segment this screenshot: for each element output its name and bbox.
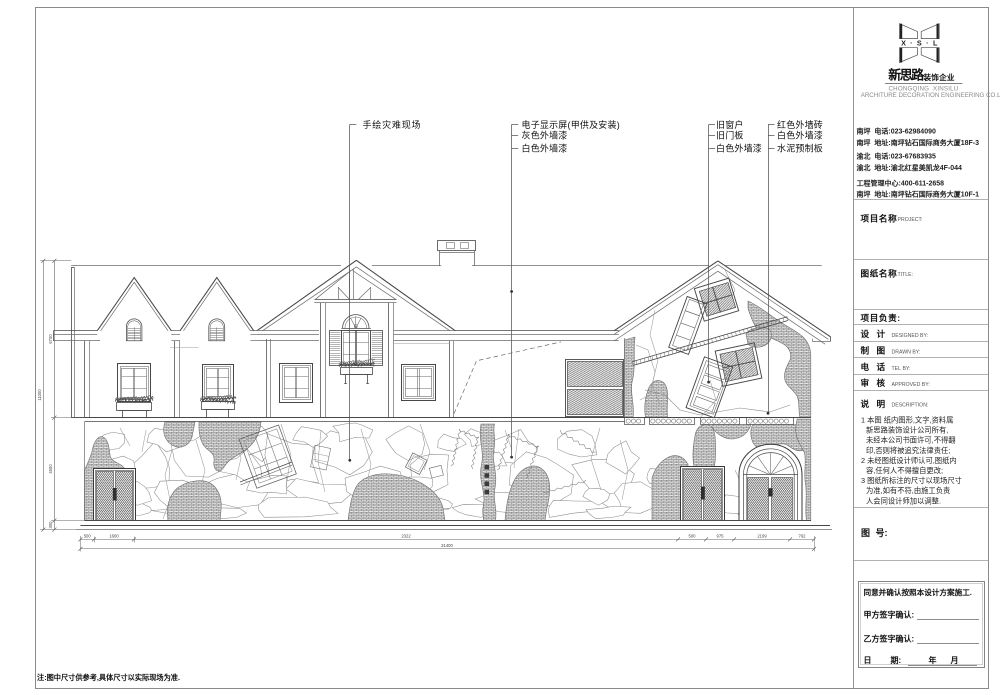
svg-text:31400: 31400 [441,543,453,548]
svg-text:电: 电 [861,361,870,372]
svg-text:月: 月 [950,656,959,665]
svg-text:甲方签字确认:: 甲方签字确认: [864,609,915,619]
svg-text:灰色外墙漆: 灰色外墙漆 [522,130,568,141]
svg-text:975: 975 [717,534,725,539]
svg-text:图: 图 [861,528,870,538]
svg-text:同意并确认按照本设计方案施工.: 同意并确认按照本设计方案施工. [864,587,972,597]
svg-text:人会同设计师加以调整.: 人会同设计师加以调整. [866,496,941,505]
svg-text:注:图中尺寸供参考,具体尺寸以实际现场为准.: 注:图中尺寸供参考,具体尺寸以实际现场为准. [37,673,180,682]
svg-text:红色外墙砖: 红色外墙砖 [777,119,823,130]
svg-text:工程管理中心:400-611-2658: 工程管理中心:400-611-2658 [857,179,945,188]
svg-text:ARCHITURE DECORATION ENGINEERI: ARCHITURE DECORATION ENGINEERING CO.LTD [861,92,1000,99]
svg-text:DRAWN BY:: DRAWN BY: [892,349,921,355]
svg-text:1 本图 纸内图形,文字,资料属: 1 本图 纸内图形,文字,资料属 [861,416,953,425]
svg-text:话: 话 [877,361,886,372]
svg-text:300: 300 [48,521,53,529]
svg-text:新思路: 新思路 [888,68,925,83]
svg-text:旧门板: 旧门板 [716,130,744,141]
svg-text:APPROVED BY:: APPROVED BY: [892,382,930,388]
svg-text:项目名称: 项目名称 [861,213,898,224]
svg-text:装饰企业: 装饰企业 [923,72,955,82]
svg-text:1600: 1600 [109,534,119,539]
svg-text:设: 设 [861,328,870,339]
svg-text:容,任何人不得擅自更改;: 容,任何人不得擅自更改; [866,466,943,475]
svg-text:南坪 地址:南坪钻石国际商务大厦18F-3: 南坪 地址:南坪钻石国际商务大厦18F-3 [857,138,980,147]
svg-text:制: 制 [861,344,870,355]
svg-text:手绘灾难现场: 手绘灾难现场 [363,119,422,130]
svg-text:年: 年 [929,655,937,665]
svg-text:PROJECT:: PROJECT: [898,217,923,223]
svg-text:DESIGNED BY:: DESIGNED BY: [892,333,929,339]
svg-text:未经本公司书面许可,不得翻: 未经本公司书面许可,不得翻 [866,436,956,445]
svg-text:印,否则将被追究法律责任;: 印,否则将被追究法律责任; [866,446,950,455]
svg-text:南坪 地址:南坪钻石国际商务大厦10F-1: 南坪 地址:南坪钻石国际商务大厦10F-1 [857,190,980,199]
svg-text:渝北 地址:渝北红星美凯龙4F-044: 渝北 地址:渝北红星美凯龙4F-044 [857,163,963,172]
svg-text:TEL BY:: TEL BY: [892,366,911,372]
svg-text:明: 明 [877,399,886,409]
svg-text:·: · [926,39,928,48]
svg-text:L: L [933,39,938,48]
svg-text:2322: 2322 [401,534,411,539]
svg-text:X: X [901,39,906,48]
svg-text:项目负责:: 项目负责: [861,312,901,323]
svg-text:6700: 6700 [48,334,53,344]
svg-text:白色外墙漆: 白色外墙漆 [777,130,823,141]
svg-text:S: S [917,39,922,48]
svg-text:水泥预制板: 水泥预制板 [777,143,823,154]
svg-text:图: 图 [877,345,886,355]
svg-text:计: 计 [877,328,886,339]
svg-text:·: · [910,39,912,48]
svg-text:500: 500 [84,534,92,539]
svg-text:图纸名称: 图纸名称 [861,268,898,279]
svg-text:白色外墙漆: 白色外墙漆 [716,143,762,154]
svg-text:审: 审 [861,377,870,388]
svg-text:旧窗户: 旧窗户 [716,119,744,130]
svg-text:号:: 号: [876,528,888,538]
svg-text:为准,如有不符,由施工负责: 为准,如有不符,由施工负责 [866,486,950,495]
svg-text:期:: 期: [891,655,902,665]
svg-text:电子显示屏(甲供及安装): 电子显示屏(甲供及安装) [522,119,620,130]
svg-text:南坪 电话:023-62984090: 南坪 电话:023-62984090 [857,127,936,136]
svg-text:日: 日 [864,656,872,665]
svg-text:2199: 2199 [757,534,767,539]
svg-text:11000: 11000 [37,389,42,401]
svg-text:TITLE:: TITLE: [898,272,914,278]
svg-text:核: 核 [877,377,886,388]
svg-text:2 未经图纸设计师认可,图纸内: 2 未经图纸设计师认可,图纸内 [861,456,957,465]
svg-text:说: 说 [861,398,870,409]
svg-text:DESCRIPTION:: DESCRIPTION: [892,402,929,408]
svg-text:渝北 电话:023-67683935: 渝北 电话:023-67683935 [857,152,936,161]
svg-text:乙方签字确认:: 乙方签字确认: [864,633,915,643]
svg-text:3 图纸所标注的尺寸以现场尺寸: 3 图纸所标注的尺寸以现场尺寸 [861,476,962,485]
svg-text:500: 500 [689,534,697,539]
svg-text:新思路装饰设计公司所有,: 新思路装饰设计公司所有, [866,426,948,435]
svg-text:762: 762 [799,534,807,539]
svg-text:4500: 4500 [48,464,53,474]
svg-text:白色外墙漆: 白色外墙漆 [522,143,568,154]
